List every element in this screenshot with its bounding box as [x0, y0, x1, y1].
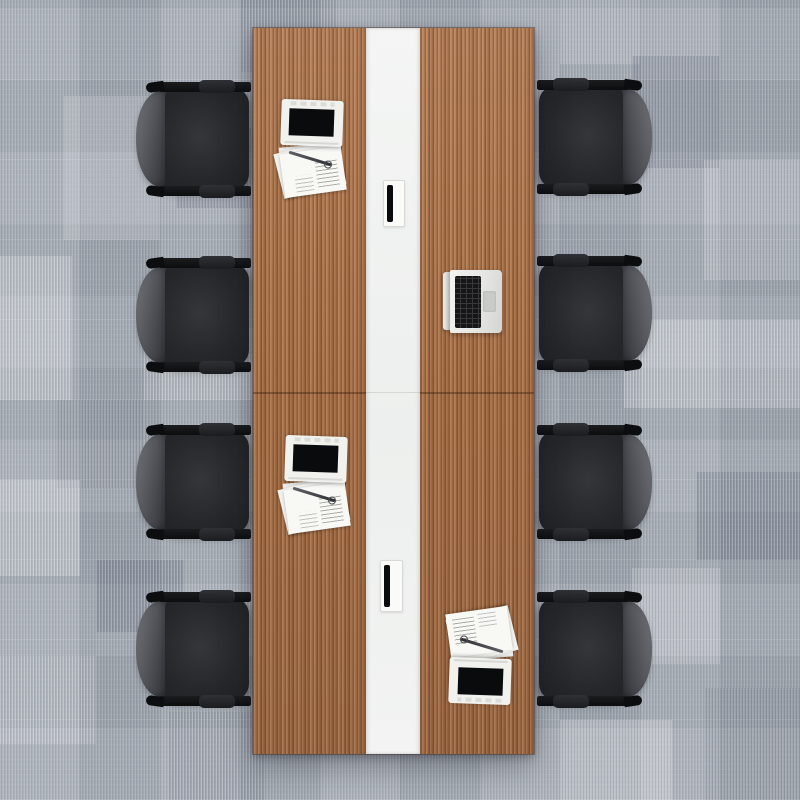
open-laptop: [443, 270, 503, 334]
laptop-screen: [458, 667, 504, 696]
laptop-lid-edge: [443, 272, 450, 330]
carpet-floor: [0, 0, 800, 800]
laptop: [448, 657, 512, 705]
items-layer: [0, 0, 800, 800]
laptop-keyboard: [455, 276, 481, 328]
laptop-screen: [293, 444, 339, 473]
laptop-with-papers: [444, 606, 514, 704]
laptop-screen: [289, 108, 335, 137]
laptop: [280, 99, 344, 147]
laptop: [284, 435, 348, 483]
document-text-lines: [294, 174, 314, 192]
document-text-lines: [477, 612, 497, 630]
document-text-lines: [298, 510, 318, 528]
laptop-with-papers: [278, 100, 348, 198]
laptop-with-papers: [282, 436, 352, 534]
laptop-trackpad: [483, 291, 496, 312]
